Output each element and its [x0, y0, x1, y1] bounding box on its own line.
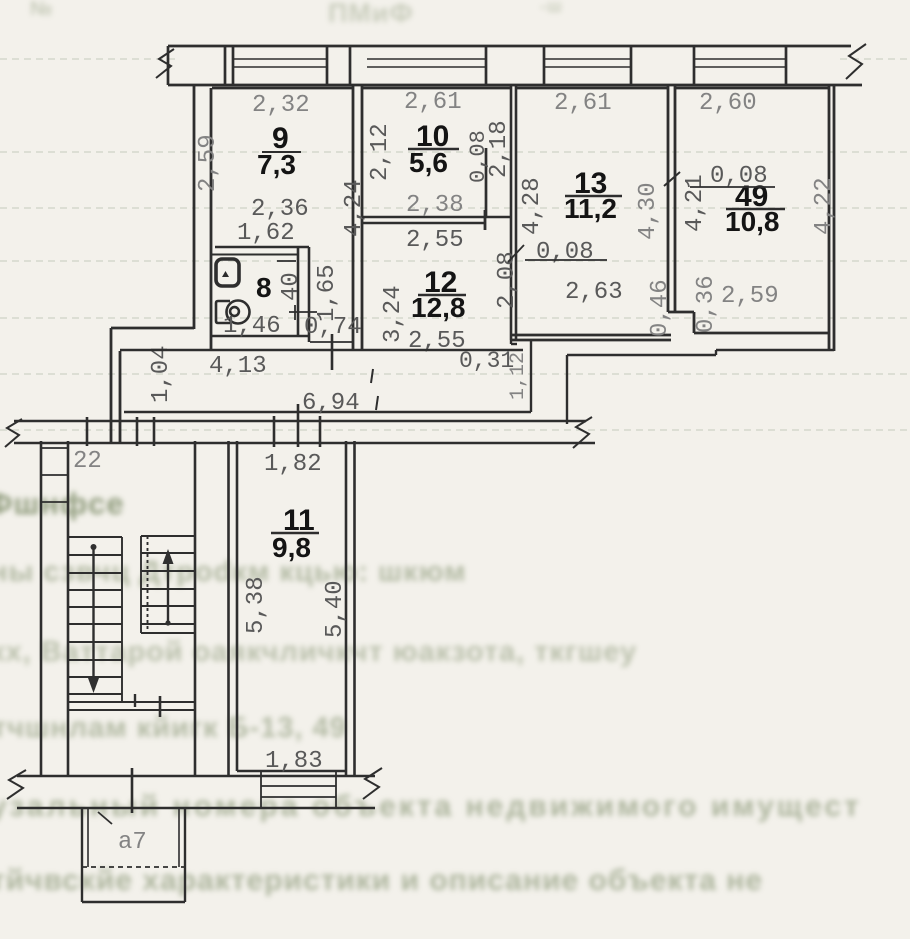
svg-text:1,12: 1,12: [507, 352, 530, 400]
svg-text:2,55: 2,55: [406, 227, 464, 254]
svg-text:10,8: 10,8: [725, 206, 780, 237]
svg-text:8: 8: [256, 272, 272, 303]
svg-text:4,22: 4,22: [811, 177, 838, 235]
svg-text:7,3: 7,3: [257, 149, 296, 180]
svg-text:5,40: 5,40: [322, 580, 349, 638]
svg-text:2,36: 2,36: [251, 196, 309, 223]
svg-text:6,94: 6,94: [302, 390, 360, 417]
svg-text:2,60: 2,60: [699, 90, 757, 117]
svg-text:2,61: 2,61: [404, 89, 462, 116]
svg-text:1,62: 1,62: [237, 220, 295, 247]
svg-text:5,6: 5,6: [409, 147, 448, 178]
svg-text:2,12: 2,12: [367, 123, 394, 181]
svg-text:4,24: 4,24: [341, 179, 368, 237]
svg-text:0,36: 0,36: [693, 275, 720, 333]
svg-text:1,83: 1,83: [265, 748, 323, 775]
svg-text:9,8: 9,8: [272, 532, 311, 563]
svg-text:3,24: 3,24: [380, 285, 407, 343]
svg-text:1,04: 1,04: [148, 345, 175, 403]
svg-text:2,32: 2,32: [252, 92, 310, 119]
svg-text:4,28: 4,28: [519, 177, 546, 235]
svg-text:4,13: 4,13: [209, 353, 267, 380]
svg-text:5,38: 5,38: [243, 576, 270, 634]
svg-text:2,18: 2,18: [486, 120, 513, 178]
svg-text:2,59: 2,59: [721, 283, 779, 310]
svg-text:0,31: 0,31: [459, 348, 514, 374]
svg-text:1,46: 1,46: [223, 313, 281, 340]
svg-text:2,63: 2,63: [565, 279, 623, 306]
svg-text:22: 22: [73, 448, 102, 475]
svg-text:4,30: 4,30: [635, 182, 662, 240]
svg-text:1,82: 1,82: [264, 451, 322, 478]
svg-text:2,08: 2,08: [494, 251, 521, 309]
svg-text:а7: а7: [118, 829, 147, 856]
svg-text:40: 40: [278, 272, 305, 301]
svg-text:12,8: 12,8: [411, 292, 466, 323]
svg-text:2,59: 2,59: [195, 134, 222, 192]
svg-text:0,08: 0,08: [536, 239, 594, 266]
svg-text:0,46: 0,46: [647, 279, 674, 337]
svg-text:2,38: 2,38: [406, 192, 464, 219]
svg-text:11,2: 11,2: [564, 193, 617, 224]
svg-text:2,61: 2,61: [554, 90, 612, 117]
svg-text:4,21: 4,21: [682, 174, 709, 232]
